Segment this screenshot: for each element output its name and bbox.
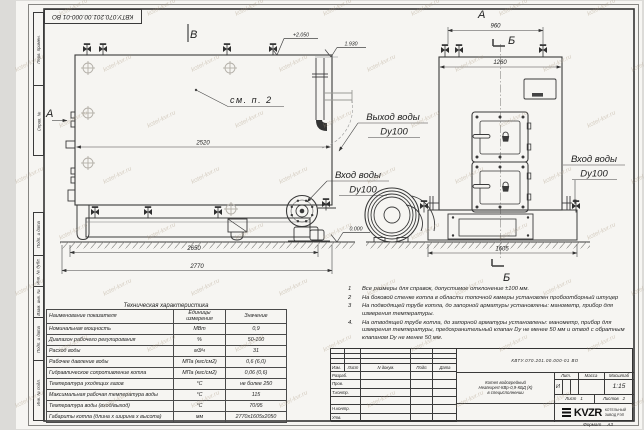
product-name-line3: в специсполнении [487, 390, 523, 395]
dim-1605: 1605 [495, 247, 509, 253]
sig-row: Н.контр. [331, 405, 457, 413]
margin-cell: Перв. примен. [34, 13, 43, 86]
tech-col-value: Значение [226, 310, 287, 324]
tech-col-units: Единицы измерения [174, 310, 226, 324]
scale-label: Масштаб [604, 372, 634, 379]
table-row: Максимальная рабочая температура воды°С1… [47, 390, 287, 401]
format-value: А3 [607, 422, 613, 427]
note-item: 3На подводящей трубе котла, до запорной … [345, 303, 635, 318]
section-marker-b-top: Б [508, 35, 515, 47]
sheets-value: 2 [623, 396, 625, 401]
margin-cell: Взам. инв. № [34, 287, 43, 318]
engineering-drawing-sheet: { "watermark": "kotel-kvr.ru", "stamp_to… [0, 0, 644, 430]
sig-row: Разраб. [331, 372, 457, 380]
sheets-label: Листов [603, 396, 619, 401]
sheet-label: Лист [565, 396, 576, 401]
table-row: Номинальная мощностьМВт0,9 [47, 324, 287, 335]
view-marker-a-side: А [45, 108, 53, 120]
dim-960: 960 [490, 24, 501, 30]
ground-line [60, 242, 590, 249]
section-marker-b-bottom: Б [503, 272, 510, 284]
doc-number: КВТУ.070.201.00.000-01 ВО [456, 349, 634, 372]
view-marker-b: В [190, 29, 197, 41]
dim-1260: 1260 [493, 60, 507, 66]
elev-ground: 0.000 [350, 227, 363, 233]
company-cell: KVZR КОТЕЛЬНЫЙ ЗАВОД РЭП [554, 403, 634, 422]
margin-strip-bottom: Подп. и датаИнв. № дубл.Взам. инв. №Подп… [33, 212, 44, 421]
sheets-cell: Листов 2 [594, 394, 634, 403]
note-item: 4.На отводящей трубе котла, до запорной … [345, 320, 635, 343]
dim-2770: 2770 [189, 264, 204, 270]
sheet-value: 1 [580, 396, 582, 401]
table-row: Расход водым3/ч31 [47, 346, 287, 357]
sig-row [331, 397, 457, 405]
tech-characteristics: Техническая характеристика Наименование … [46, 303, 286, 423]
company-name-line2: ЗАВОД РЭП [605, 413, 624, 417]
notes-list: 1Все размеры для справок, допустимое отк… [345, 286, 635, 343]
format-label: Формат [583, 422, 601, 427]
title-block: КВТУ.070.201.00.000-01 ВО Котел водогрей… [330, 348, 633, 421]
margin-strip-top: Перв. примен.Справ. № [33, 12, 44, 156]
dim-2520: 2520 [195, 141, 210, 147]
company-logo-text: KVZR [574, 407, 602, 419]
inlet-label-side: Вход воды [335, 170, 381, 181]
table-row: Диапазон рабочего регулирования%50-100 [47, 335, 287, 346]
table-row: Температура уходящих газов°Сне более 250 [47, 379, 287, 390]
tech-table-header-row: Наименование показателя Единицы измерени… [47, 310, 287, 324]
inlet-label-front: Вход воды [571, 154, 617, 165]
margin-cell: Инв. № дубл. [34, 256, 43, 287]
outlet-label: Выход воды [366, 112, 419, 123]
company-name: КОТЕЛЬНЫЙ ЗАВОД РЭП [605, 408, 626, 417]
inlet-dn-front: Dy100 [580, 169, 608, 180]
product-name: Котел водогрейный Heatexpert-КВр-0,9-КБД… [457, 372, 554, 403]
tech-table: Наименование показателя Единицы измерени… [46, 309, 287, 423]
note-item: 2На боковой стенке котла в области топоч… [345, 295, 635, 303]
mass-label: Масса [578, 372, 604, 379]
tech-table-body: Номинальная мощностьМВт0,9Диапазон рабоч… [47, 324, 287, 423]
margin-cell: Инв. № подл. [34, 361, 43, 424]
front-view-drawing [365, 44, 580, 258]
sig-row: Т.контр. [331, 389, 457, 397]
elev-pipe: 1.930 [345, 42, 358, 48]
sig-row: Утв. [331, 414, 457, 422]
top-stamp-number: КВТУ.070.201.00.000-01 ВО [52, 13, 133, 20]
dim-2650: 2650 [186, 246, 201, 252]
table-row: Габариты котла (длина х ширина х высота)… [47, 412, 287, 423]
table-row: Гидравлическое сопротивление котлаМПа (к… [47, 368, 287, 379]
inlet-dn-side: Dy100 [349, 185, 377, 196]
table-row: Температура воды (вход/выход)°С70/95 [47, 401, 287, 412]
tech-col-name: Наименование показателя [47, 310, 174, 324]
elev-top: +2.050 [293, 33, 309, 39]
top-stamp: КВТУ.070.201.00.000-01 ВО [44, 9, 142, 24]
margin-cell: Подп. и дата [34, 213, 43, 256]
view-marker-a-front: А [477, 9, 485, 21]
sheet-cell: Лист 1 [554, 394, 594, 403]
scale-value: 1:15 [604, 379, 634, 394]
format-label-cell: Формат А3 [560, 422, 636, 427]
outlet-dn: Dy100 [380, 127, 408, 138]
company-logo-icon [562, 408, 571, 418]
sig-row: Пров. [331, 380, 457, 388]
see-note-ref: см. п. 2 [230, 95, 273, 105]
margin-cell: Справ. № [34, 86, 43, 157]
margin-cell: Подп. и дата [34, 318, 43, 361]
sig-row: Изм.ЛистN докум.Подп.Дата [331, 364, 457, 372]
lit-value: И [554, 379, 562, 394]
note-item: 1Все размеры для справок, допустимое отк… [345, 286, 635, 294]
table-row: Рабочее давление водыМПа (кгс/см2)0,6 (6… [47, 357, 287, 368]
lit-label: Лит. [554, 372, 578, 379]
